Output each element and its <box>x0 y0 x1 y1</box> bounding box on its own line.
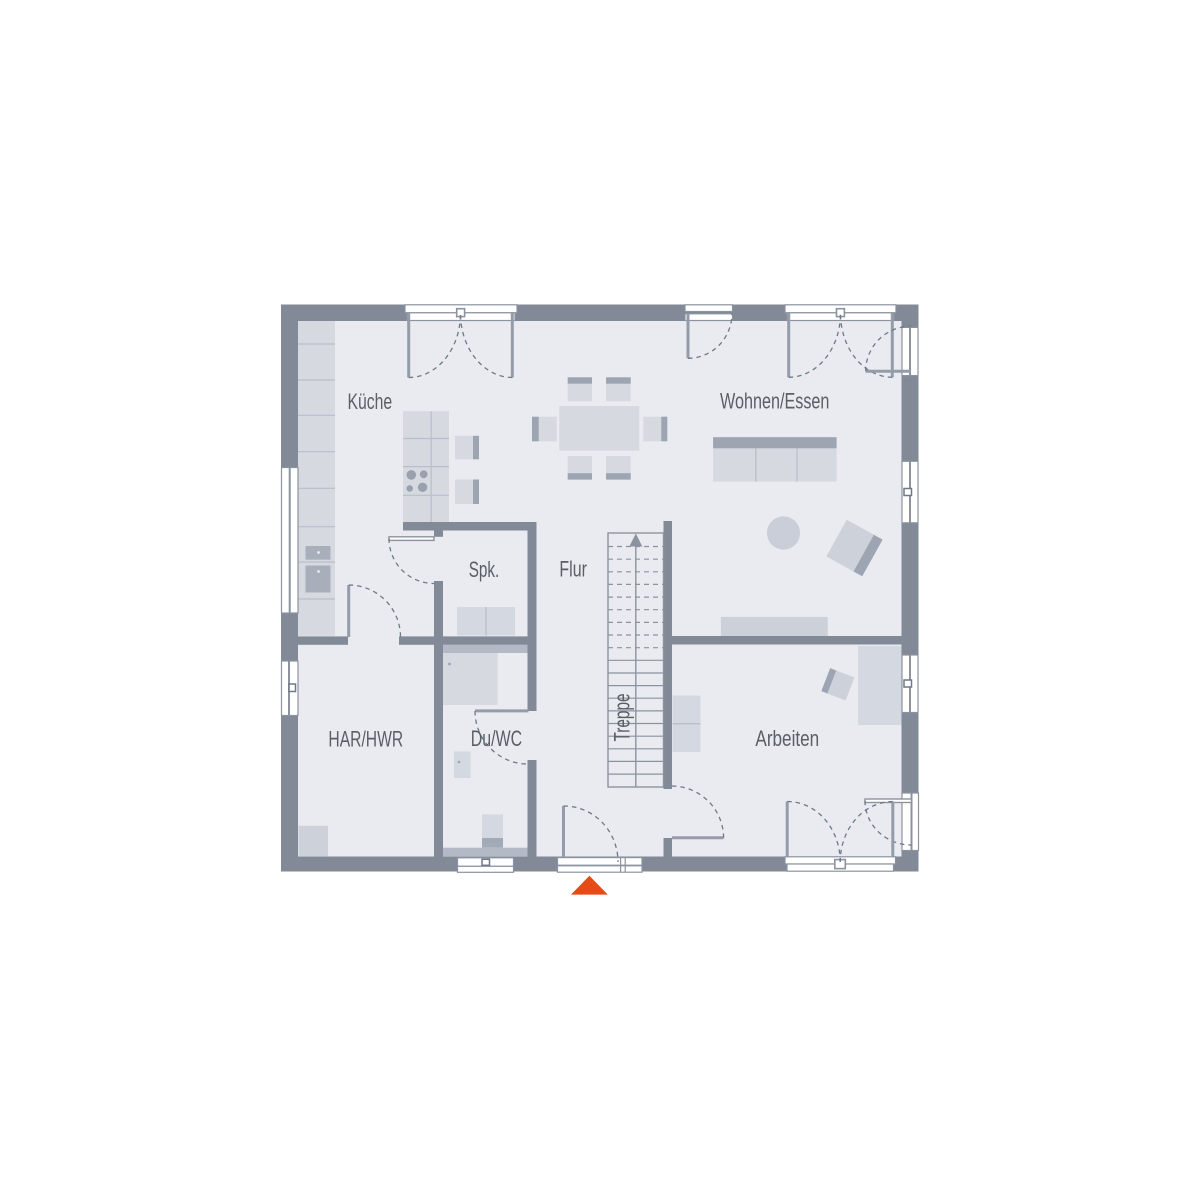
svg-text:Treppe: Treppe <box>610 694 635 742</box>
svg-text:HAR/HWR: HAR/HWR <box>328 726 403 751</box>
svg-text:Wohnen/Essen: Wohnen/Essen <box>720 389 829 414</box>
svg-text:Küche: Küche <box>348 389 393 414</box>
svg-text:Spk.: Spk. <box>469 557 500 582</box>
svg-text:Arbeiten: Arbeiten <box>755 726 819 751</box>
svg-text:Du/WC: Du/WC <box>471 726 522 751</box>
svg-text:Flur: Flur <box>559 556 587 581</box>
